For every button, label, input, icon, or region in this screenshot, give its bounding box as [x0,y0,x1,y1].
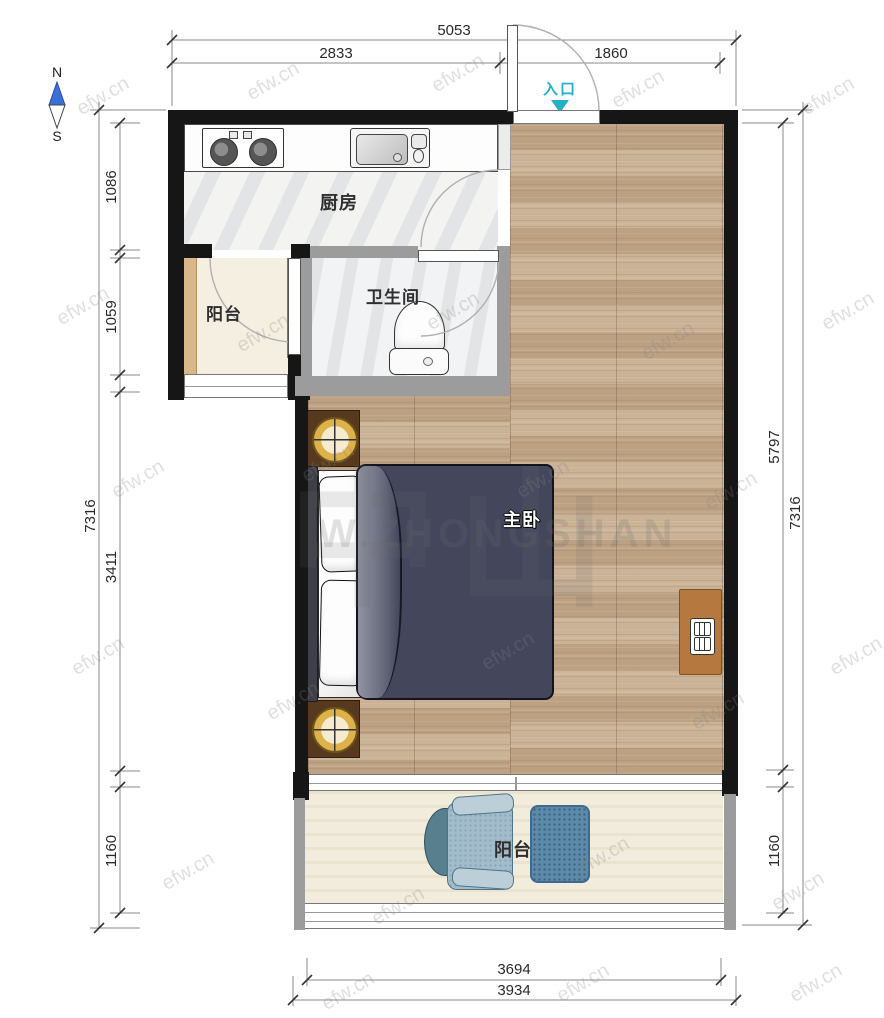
entrance-door-leaf [507,25,518,112]
kitchen-label: 厨房 [320,189,358,215]
compass-south-label: S [52,128,61,144]
dim-top-total: 5053 [434,23,473,39]
bathroom-wall-bottom [295,376,510,396]
dim-top-left: 2833 [316,46,355,62]
socket-slot [694,637,711,651]
bathroom-wall-top-a [310,246,418,258]
watermark-tile: efw.cn [428,49,489,97]
watermark-tile: efw.cn [553,959,614,1007]
watermark-tile: efw.cn [318,967,379,1015]
faucet-spout [413,149,424,163]
toilet-tank [389,348,449,375]
bed-duvet [356,464,554,700]
dim-right-total: 7316 [788,493,804,532]
dim-left-seg4: 1160 [104,832,120,870]
watermark-tile: efw.cn [243,57,304,105]
compass-north-label: N [52,64,62,80]
toilet-flush-button [423,357,433,366]
bottom-balcony-label: 阳台 [494,836,532,862]
wall-socket [690,618,715,655]
socket-slot [694,622,711,636]
watermark-tile: efw.cn [786,959,847,1007]
bathroom-wall-right [497,258,510,378]
stove [202,128,284,168]
dim-left-seg1: 1086 [104,167,120,206]
wall-balcony-left-corner [293,772,309,800]
dim-right-inner: 5797 [767,427,783,466]
bathroom-label: 卫生间 [366,283,420,308]
watermark-tile: efw.cn [73,72,134,120]
wall-right [724,110,738,790]
watermark-tile: efw.cn [798,72,859,120]
watermark-tile: efw.cn [826,632,884,680]
bedroom-balcony-window [308,774,724,791]
rug [530,805,590,883]
dim-left-seg2: 1059 [104,297,120,336]
stove-knob [243,131,252,139]
faucet [411,134,427,149]
stove-burner [210,138,238,166]
wall-top-right [600,110,738,124]
bathroom-door-leaf [418,250,499,262]
lamp-top [312,417,358,463]
watermark-tile: efw.cn [768,867,829,915]
dim-right-bottom: 1160 [767,832,783,870]
watermark-tile: efw.cn [108,455,169,503]
side-table [679,589,722,675]
master-bedroom-label: 主卧 [503,506,541,532]
watermark-tile: efw.cn [818,287,879,335]
wall-balcony-right-corner [722,770,738,796]
entrance-label: 入口 [543,78,577,99]
compass-arrow [49,82,65,128]
dim-left-seg3: 3411 [104,548,120,586]
stove-knob [229,131,238,139]
floor-plan: N S 入口 厨房 卫生间 阳台 主卧 阳台 5053 2833 1860 73… [0,0,884,1018]
bottom-balcony-glazing [303,903,725,929]
left-balcony-window [184,374,288,398]
wall-kitchen-bottom-b [291,244,310,258]
balcony-wall-left [294,798,305,930]
watermark-tile: efw.cn [68,632,129,680]
kitchen-sink [350,128,430,168]
balcony-door-leaf [288,258,301,355]
dim-top-right: 1860 [591,46,630,62]
stove-burner [249,138,277,166]
dim-left-total: 7316 [83,496,99,535]
dim-bottom-inner: 3694 [494,962,533,978]
dim-bottom-outer: 3934 [494,983,533,999]
kitchen-door-jamb [498,124,511,170]
left-balcony-label: 阳台 [206,300,242,325]
lamp-bottom [312,707,358,753]
bathroom-wall-left [301,258,312,378]
entrance-threshold [513,110,600,124]
wall-top-left [168,110,513,124]
left-balcony-sill [184,258,197,376]
duvet-fold [358,466,402,698]
wall-kitchen-bottom-a [168,244,212,258]
balcony-wall-right [724,794,736,930]
sink-drain [393,153,402,162]
watermark-tile: efw.cn [608,65,669,113]
wall-bedroom-left [295,396,308,781]
watermark-tile: efw.cn [158,847,219,895]
